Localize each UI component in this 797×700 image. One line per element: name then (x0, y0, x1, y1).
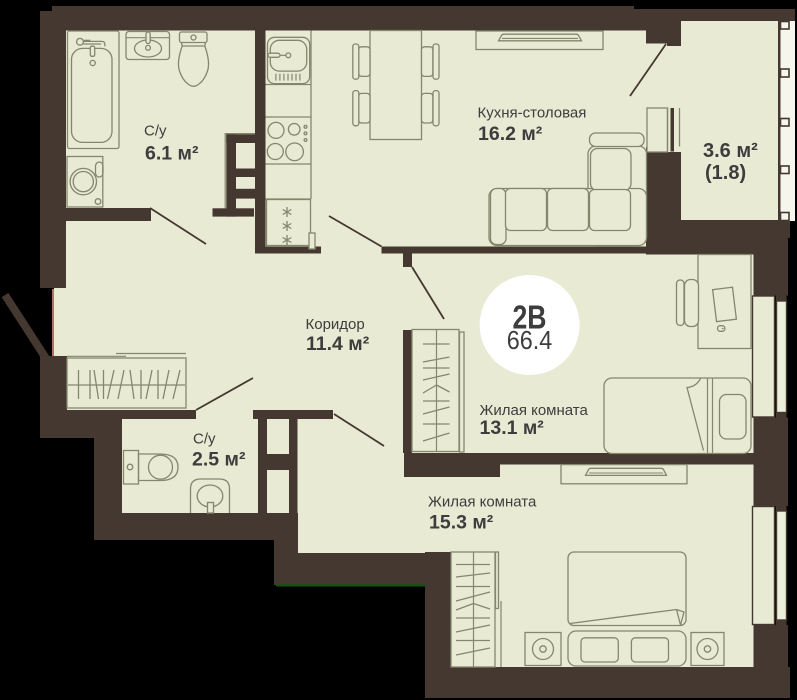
svg-text:Коридор: Коридор (306, 316, 365, 333)
svg-text:2.5 м²: 2.5 м² (192, 449, 246, 471)
svg-text:(1.8): (1.8) (705, 162, 746, 184)
svg-text:Кухня-столовая: Кухня-столовая (478, 105, 587, 122)
svg-text:16.2 м²: 16.2 м² (478, 123, 543, 145)
svg-text:3.6 м²: 3.6 м² (703, 140, 758, 162)
svg-text:Жилая комната: Жилая комната (428, 494, 537, 511)
svg-text:15.3 м²: 15.3 м² (429, 512, 494, 534)
svg-text:11.4 м²: 11.4 м² (306, 333, 370, 355)
svg-text:6.1 м²: 6.1 м² (145, 143, 199, 165)
svg-text:С/у: С/у (144, 123, 167, 140)
svg-text:66.4: 66.4 (507, 325, 553, 355)
svg-text:13.1 м²: 13.1 м² (480, 417, 545, 439)
svg-text:С/у: С/у (193, 431, 216, 448)
